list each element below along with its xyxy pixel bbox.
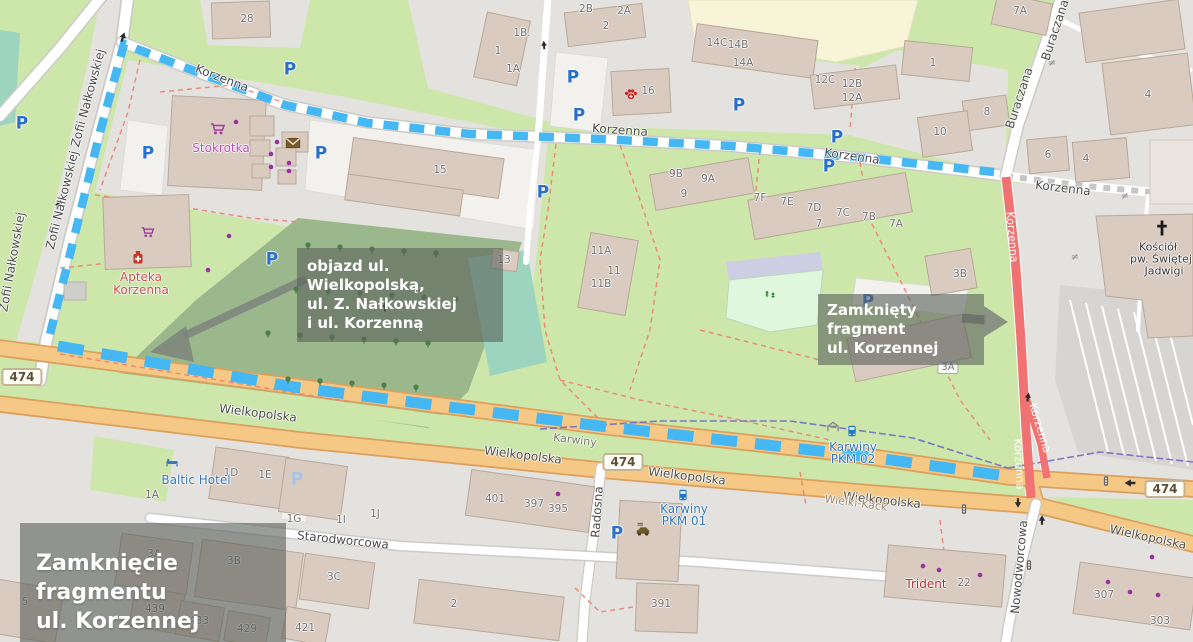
dot-icon <box>269 152 274 157</box>
dot-icon <box>269 165 274 170</box>
dot-icon <box>287 169 292 174</box>
dot-icon <box>206 268 211 273</box>
dot-icon <box>1128 590 1133 595</box>
dot-icon <box>978 573 983 578</box>
mail-icon <box>286 138 300 147</box>
closure-note-line2: ul. Korzennej <box>827 339 975 358</box>
dot-icon <box>227 234 232 239</box>
closure-note-line1: Zamknięty fragment <box>827 301 975 339</box>
dot-icon <box>1156 593 1161 598</box>
detour-note-line3: i ul. Korzenną <box>307 314 493 333</box>
map: Zofii NałkowskiejZofii NałkowskiejZofii … <box>0 0 1193 642</box>
dot-icon <box>1150 555 1155 560</box>
dot-icon <box>556 492 561 497</box>
map-title: Zamknięcie fragmentu ul. Korzennej <box>20 523 286 642</box>
detour-note-line2: ul. Z. Nałkowskiej <box>307 295 493 314</box>
map-title-line2: ul. Korzennej <box>36 607 270 636</box>
closure-note: Zamknięty fragment ul. Korzennej <box>818 294 984 365</box>
dot-icon <box>937 568 942 573</box>
tlight-icon <box>1104 476 1108 486</box>
dot-icon <box>275 140 280 145</box>
dot-icon <box>287 161 292 166</box>
bus-icon <box>679 490 686 500</box>
dot-icon <box>234 120 239 125</box>
dot-icon <box>921 564 926 569</box>
detour-note: objazd ul. Wielkopolską, ul. Z. Nałkowsk… <box>297 248 503 342</box>
bus-icon <box>848 426 855 436</box>
tlight-icon <box>1027 560 1031 570</box>
playground-area <box>726 270 823 332</box>
tlight-icon <box>962 504 966 514</box>
dot-icon <box>1106 580 1111 585</box>
map-title-line1: Zamknięcie fragmentu <box>36 549 270 607</box>
detour-note-line1: objazd ul. Wielkopolską, <box>307 257 493 295</box>
